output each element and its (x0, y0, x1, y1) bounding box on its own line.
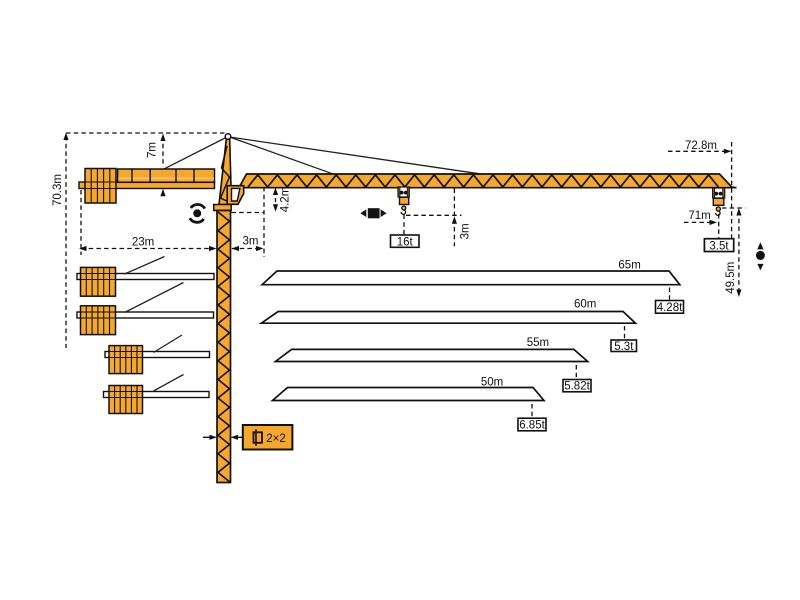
svg-text:3m: 3m (243, 235, 259, 247)
svg-text:5.82t: 5.82t (564, 381, 590, 393)
svg-text:50m: 50m (481, 376, 503, 388)
svg-text:6.85t: 6.85t (519, 420, 545, 432)
svg-text:5.3t: 5.3t (614, 341, 634, 353)
svg-text:3.5t: 3.5t (709, 240, 729, 252)
svg-text:7m: 7m (147, 142, 159, 158)
svg-text:65m: 65m (618, 259, 640, 271)
svg-text:60m: 60m (574, 298, 596, 310)
svg-text:23m: 23m (132, 237, 154, 249)
svg-text:55m: 55m (527, 337, 549, 349)
svg-text:16t: 16t (397, 236, 414, 248)
svg-text:71m: 71m (688, 210, 710, 222)
svg-text:72.8m: 72.8m (685, 140, 717, 152)
svg-text:70.3m: 70.3m (52, 174, 64, 206)
svg-text:49.5m: 49.5m (725, 262, 737, 294)
svg-text:2×2: 2×2 (266, 433, 286, 445)
svg-text:3m: 3m (460, 223, 472, 239)
svg-text:4.2m: 4.2m (280, 187, 292, 213)
svg-text:4.28t: 4.28t (657, 302, 683, 314)
